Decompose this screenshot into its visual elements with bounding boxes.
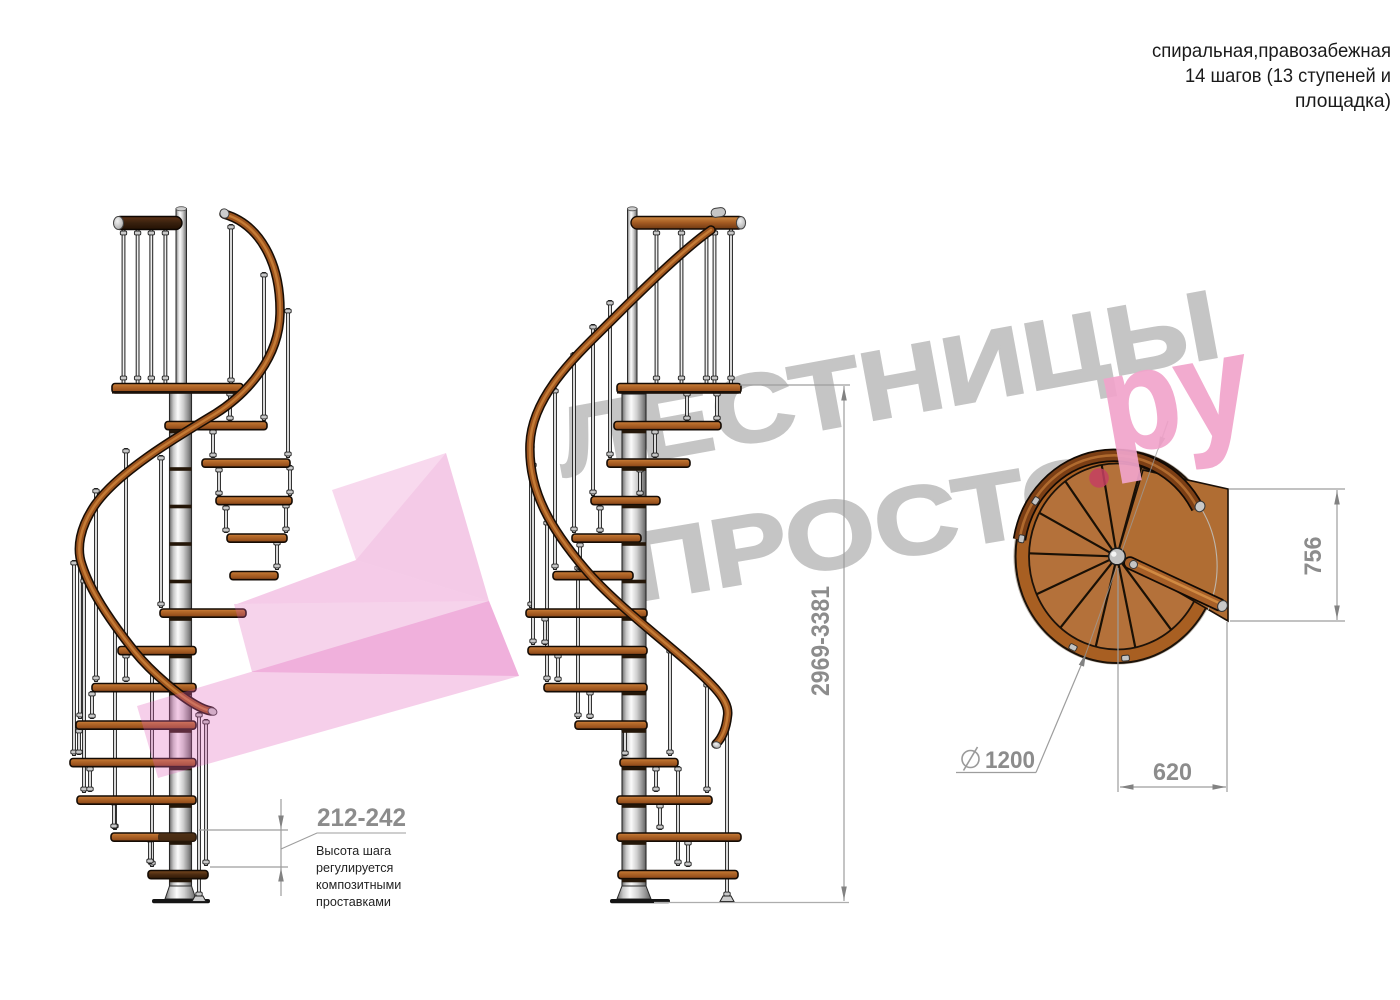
svg-text:ру: ру [1087, 303, 1262, 486]
svg-text:спиральная,правозабежная: спиральная,правозабежная [1152, 40, 1391, 62]
svg-text:1200: 1200 [985, 747, 1035, 774]
svg-text:756: 756 [1300, 537, 1327, 576]
svg-text:212-242: 212-242 [317, 804, 406, 832]
svg-text:14 шагов (13 ступеней и: 14 шагов (13 ступеней и [1185, 65, 1391, 87]
svg-text:регулируется: регулируется [316, 861, 393, 875]
svg-text:композитными: композитными [316, 878, 401, 892]
svg-text:проставками: проставками [316, 895, 391, 909]
svg-text:2969-3381: 2969-3381 [807, 586, 835, 696]
svg-text:620: 620 [1153, 759, 1192, 786]
svg-text:площадка): площадка) [1295, 90, 1391, 112]
svg-text:Высота шага: Высота шага [316, 844, 391, 858]
